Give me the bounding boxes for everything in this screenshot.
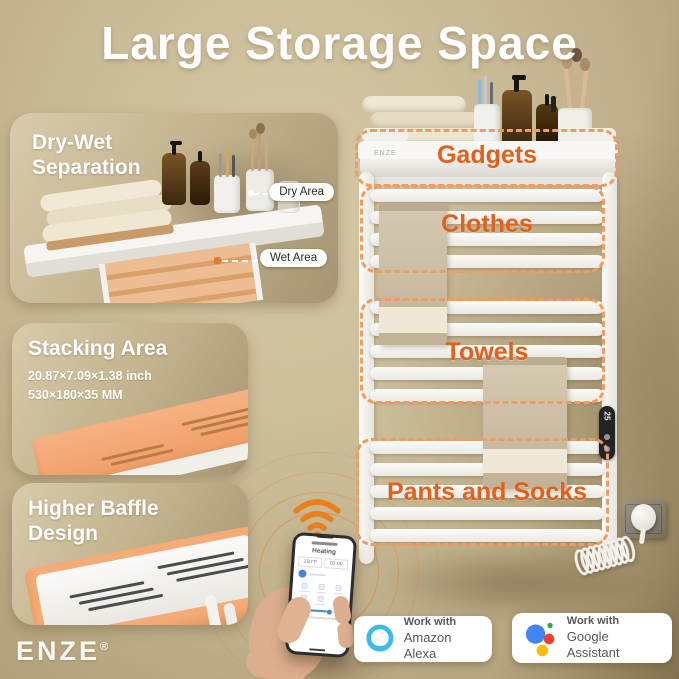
card-higher-baffle: Higher Baffle Design — [12, 483, 248, 625]
controller-button — [604, 434, 610, 440]
card2-heading: Stacking Area — [28, 337, 167, 362]
card1-makeup-brush — [258, 131, 261, 171]
registered-mark: ® — [100, 641, 108, 653]
app-temperature: 150°F — [298, 556, 323, 568]
alexa-work-with: Work with — [404, 616, 481, 630]
card1-cup — [214, 175, 240, 213]
wet-area-connector — [222, 260, 258, 262]
google-work-with: Work with — [567, 615, 661, 629]
app-mode-cell — [314, 583, 329, 594]
card3-heading-line1: Higher Baffle — [28, 497, 159, 520]
card1-heading-line2: Separation — [32, 156, 141, 179]
card-dry-wet-separation: Dry-Wet Separation Dry Area Wet Area — [10, 113, 338, 303]
alexa-name: Amazon Alexa — [404, 630, 481, 663]
makeup-brush — [564, 66, 572, 112]
zone-label-towels: Towels — [407, 338, 567, 367]
mode-label-line — [333, 592, 343, 594]
soap-pump-nozzle — [512, 75, 526, 80]
badge-amazon-alexa: Work with Amazon Alexa — [354, 616, 492, 662]
card1-heading: Dry-Wet Separation — [32, 131, 141, 181]
card1-pump — [198, 151, 202, 162]
app-header — [312, 541, 338, 546]
page-title: Large Storage Space — [0, 16, 679, 70]
card1-makeup-brush — [251, 137, 254, 171]
google-assistant-dots-icon — [523, 617, 558, 659]
controller-display: 25 — [603, 412, 612, 426]
card1-toothbrush — [219, 153, 222, 177]
card2-size-inch: 20.87×7.09×1.38 inch — [28, 367, 152, 386]
card3-heading: Higher Baffle Design — [28, 497, 159, 547]
card1-pump-nozzle — [170, 141, 182, 145]
google-badge-text: Work with Google Assistant — [567, 615, 661, 661]
brand-logo-text: ENZE — [16, 636, 100, 666]
mode-icon — [318, 596, 324, 602]
home-indicator — [309, 648, 325, 651]
alexa-badge-text: Work with Amazon Alexa — [404, 616, 481, 662]
zone-label-pants: Pants and Socks — [377, 478, 597, 507]
app-value-row: 150°F 02:00 — [298, 556, 349, 569]
mode-icon — [302, 583, 308, 589]
power-toggle-icon — [298, 569, 307, 578]
soap-pump — [545, 94, 549, 106]
card1-liner — [232, 155, 235, 177]
app-mode-cell — [297, 581, 312, 592]
zone-label-clothes: Clothes — [407, 210, 567, 239]
mode-label-line — [315, 603, 325, 605]
alexa-ring-icon — [365, 623, 395, 655]
lipstick — [551, 96, 556, 112]
wet-area-marker — [214, 257, 221, 264]
card1-brush — [226, 149, 229, 177]
mode-label-line — [300, 590, 310, 592]
card2-dimensions: 20.87×7.09×1.38 inch 530×180×35 MM — [28, 367, 152, 405]
card2-size-mm: 530×180×35 MM — [28, 386, 152, 405]
app-mode-cell — [330, 584, 345, 595]
makeup-brush — [580, 68, 588, 112]
product-infographic: Large Storage Space Dry-Wet Separation D… — [0, 0, 679, 679]
card1-makeup-brush — [265, 139, 268, 171]
card1-brush-tip — [256, 123, 265, 134]
card1-heading-line1: Dry-Wet — [32, 131, 112, 154]
wet-area-callout: Wet Area — [260, 249, 327, 267]
card1-soap-bottle — [162, 153, 186, 205]
card3-heading-line2: Design — [28, 522, 98, 545]
soap-pump — [514, 78, 519, 92]
card1-soap-bottle — [190, 161, 210, 205]
google-name: Google Assistant — [567, 629, 661, 662]
mode-label-line — [316, 591, 326, 593]
slider-knob — [326, 609, 331, 614]
app-timer: 02:00 — [324, 558, 349, 570]
mode-icon — [335, 585, 341, 591]
brand-logo: ENZE® — [16, 636, 108, 667]
app-power-row — [298, 569, 351, 581]
badge-google-assistant: Work with Google Assistant — [512, 613, 672, 663]
app-mode-cell — [313, 594, 328, 605]
fingertip — [337, 621, 355, 648]
dry-area-callout: Dry Area — [269, 183, 334, 201]
card-stacking-area: Stacking Area 20.87×7.09×1.38 inch 530×1… — [12, 323, 248, 475]
dry-area-connector-dot — [248, 190, 254, 196]
app-text-line — [309, 573, 325, 576]
app-status-text: Heating — [295, 546, 353, 557]
mode-icon — [318, 584, 324, 590]
zone-label-gadgets: Gadgets — [407, 141, 567, 170]
